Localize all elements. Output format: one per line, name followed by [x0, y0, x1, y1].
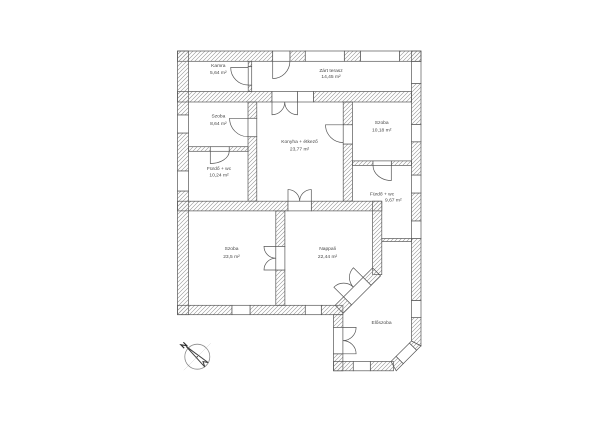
svg-text:23,5 m²: 23,5 m²: [223, 254, 240, 260]
svg-text:22,44 m²: 22,44 m²: [318, 254, 338, 260]
svg-text:Szoba: Szoba: [375, 120, 389, 126]
svg-text:8,64 m²: 8,64 m²: [210, 121, 227, 127]
svg-text:10,24 m²: 10,24 m²: [209, 173, 229, 179]
svg-text:10,18 m²: 10,18 m²: [372, 128, 392, 134]
svg-text:Szoba: Szoba: [211, 114, 225, 120]
svg-text:Fürdő + wc: Fürdő + wc: [370, 191, 395, 197]
svg-text:Szoba: Szoba: [225, 246, 239, 252]
svg-text:Kamra: Kamra: [211, 63, 226, 69]
svg-text:Fürdő + wc: Fürdő + wc: [207, 166, 232, 172]
svg-text:23,77 m²: 23,77 m²: [290, 146, 310, 152]
svg-text:Konyha + étkező: Konyha + étkező: [281, 139, 318, 145]
svg-text:5,64 m²: 5,64 m²: [210, 70, 227, 76]
svg-text:Zárt terasz: Zárt terasz: [319, 68, 343, 74]
svg-text:Előszoba: Előszoba: [371, 320, 391, 326]
svg-text:9,67 m²: 9,67 m²: [385, 198, 402, 204]
svg-text:Nappali: Nappali: [319, 246, 336, 252]
svg-text:14,45 m²: 14,45 m²: [321, 74, 341, 80]
